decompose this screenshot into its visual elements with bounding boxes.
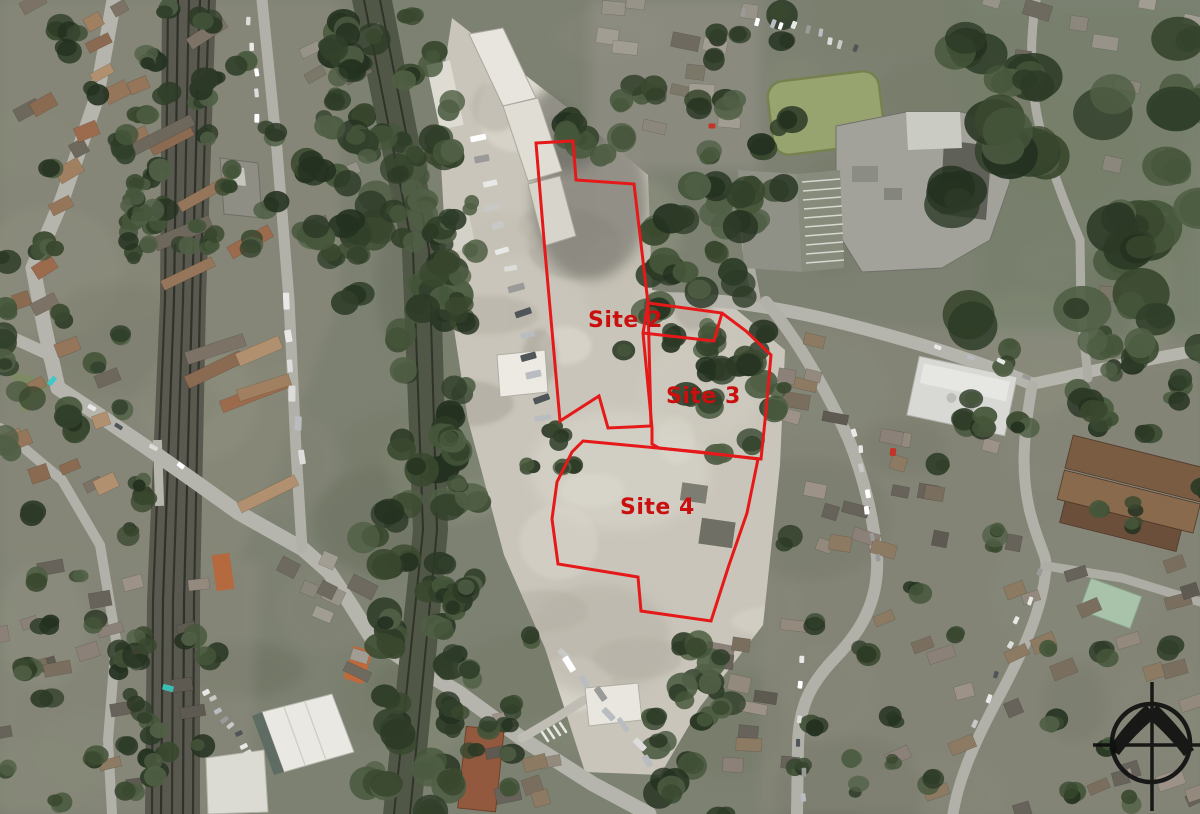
house-roof	[171, 677, 194, 693]
car	[797, 681, 803, 689]
tree-canopy	[150, 722, 169, 738]
tree-canopy	[425, 50, 440, 63]
tree-canopy	[438, 100, 460, 122]
tree-canopy	[194, 646, 217, 665]
tree-canopy	[127, 252, 141, 264]
tree-canopy	[366, 29, 382, 45]
tree-canopy	[143, 492, 157, 505]
tree-canopy	[191, 739, 205, 751]
tree-canopy	[39, 617, 59, 635]
tree-canopy	[1089, 500, 1109, 518]
tree-canopy	[1125, 518, 1139, 530]
tree-canopy	[387, 438, 416, 461]
tree-canopy	[646, 708, 667, 726]
tree-canopy	[390, 357, 417, 383]
tree-canopy	[705, 48, 724, 63]
tree-canopy	[374, 499, 404, 525]
tree-canopy	[13, 665, 32, 680]
car	[800, 793, 806, 802]
tree-canopy	[437, 769, 460, 791]
tree-canopy	[722, 90, 746, 109]
house-roof	[731, 637, 750, 653]
tree-canopy	[200, 131, 216, 146]
tree-canopy	[140, 235, 158, 253]
tree-canopy	[440, 139, 464, 162]
tree-canopy	[339, 59, 364, 80]
tree-canopy	[549, 433, 568, 451]
tree-canopy	[19, 386, 46, 410]
tree-canopy	[258, 121, 275, 135]
tree-canopy	[347, 246, 368, 265]
tree-canopy	[192, 12, 213, 30]
tree-canopy	[1135, 425, 1155, 443]
tree-canopy	[1080, 400, 1106, 423]
tree-canopy	[1077, 327, 1107, 354]
tree-canopy	[965, 392, 980, 404]
tree-canopy	[1063, 298, 1089, 319]
aerial-map-image: Site 2 Site 3 Site 4	[0, 0, 1200, 814]
tree-canopy	[126, 187, 141, 199]
tree-canopy	[442, 209, 467, 230]
tree-canopy	[152, 87, 176, 105]
house-roof	[828, 534, 852, 552]
tree-canopy	[392, 165, 409, 181]
tree-canopy	[1020, 70, 1054, 101]
tree-canopy	[445, 297, 468, 315]
tree-canopy	[468, 743, 486, 757]
tree-canopy	[137, 712, 152, 723]
tree-canopy	[140, 57, 154, 69]
large-building-roof	[906, 112, 962, 150]
tree-canopy	[438, 556, 454, 570]
tree-canopy	[667, 205, 699, 234]
tree-canopy	[686, 97, 711, 119]
tree-canopy	[945, 22, 986, 54]
tree-canopy	[83, 751, 102, 767]
tree-canopy	[110, 325, 131, 342]
tree-canopy	[379, 688, 400, 709]
tree-canopy	[319, 34, 348, 62]
car	[288, 386, 295, 402]
tree-canopy	[699, 150, 715, 164]
tree-canopy	[86, 84, 109, 105]
tree-canopy	[768, 31, 794, 51]
tree-canopy	[346, 130, 366, 145]
tree-canopy	[90, 362, 106, 374]
car	[890, 448, 897, 456]
car	[254, 114, 259, 123]
tree-canopy	[149, 158, 173, 181]
tree-canopy	[188, 219, 207, 233]
tree-canopy	[705, 242, 728, 263]
tree-canopy	[685, 173, 712, 199]
house-roof	[685, 64, 705, 81]
tree-canopy	[73, 570, 89, 583]
tree-canopy	[687, 280, 711, 299]
tree-canopy	[778, 525, 803, 548]
tree-canopy	[0, 759, 17, 776]
car	[246, 17, 251, 26]
tree-canopy	[673, 261, 699, 282]
tree-canopy	[441, 375, 467, 400]
tree-canopy	[0, 303, 17, 319]
tree-canopy	[1039, 716, 1059, 732]
tree-canopy	[1100, 362, 1118, 378]
car	[295, 416, 302, 430]
tree-canopy	[1158, 635, 1184, 655]
tree-canopy	[50, 304, 70, 322]
tree-canopy	[841, 750, 862, 767]
tree-canopy	[390, 205, 408, 223]
tree-canopy	[1096, 649, 1118, 668]
house-roof	[723, 757, 744, 772]
tree-canopy	[433, 622, 454, 640]
tree-canopy	[264, 191, 290, 213]
tree-canopy	[990, 523, 1005, 537]
tree-canopy	[857, 646, 877, 663]
tree-canopy	[55, 405, 82, 428]
warehouse-roof	[206, 750, 268, 814]
car	[858, 445, 863, 453]
tree-canopy	[972, 407, 997, 426]
tree-canopy	[240, 239, 262, 258]
house-roof	[602, 0, 626, 15]
tree-canopy	[685, 638, 707, 657]
tree-canopy	[422, 224, 439, 240]
tree-canopy	[808, 617, 823, 629]
tree-canopy	[336, 209, 366, 232]
tree-canopy	[1170, 369, 1193, 390]
tree-canopy	[519, 458, 534, 472]
tree-canopy	[370, 771, 403, 797]
tree-canopy	[386, 318, 417, 349]
tree-canopy	[723, 210, 758, 243]
car	[799, 656, 804, 663]
car	[283, 293, 290, 310]
tree-canopy	[347, 522, 380, 553]
tree-canopy	[115, 124, 139, 145]
tree-canopy	[879, 706, 902, 727]
tree-canopy	[501, 718, 519, 732]
tree-canopy	[1039, 640, 1057, 657]
tree-canopy	[406, 457, 426, 475]
tree-canopy	[944, 188, 972, 211]
tree-canopy	[26, 573, 47, 592]
tree-canopy	[984, 65, 1015, 93]
tree-canopy	[462, 203, 477, 216]
tree-canopy	[1124, 328, 1155, 358]
tree-canopy	[848, 776, 869, 792]
tree-canopy	[769, 174, 798, 202]
tree-canopy	[402, 7, 423, 25]
tree-canopy	[309, 159, 336, 182]
tree-canopy	[133, 479, 146, 491]
house-roof	[1069, 15, 1088, 31]
site-2-label: Site 2	[588, 308, 663, 333]
tree-canopy	[1163, 158, 1191, 184]
tree-canopy	[115, 736, 135, 753]
tree-canopy	[123, 688, 138, 701]
tree-canopy	[439, 431, 458, 447]
tree-canopy	[46, 241, 64, 257]
tree-canopy	[661, 784, 682, 803]
tree-canopy	[645, 88, 665, 105]
tree-canopy	[206, 225, 225, 243]
tree-canopy	[983, 108, 1033, 155]
tree-canopy	[84, 617, 103, 634]
tree-canopy	[377, 616, 393, 629]
tree-canopy	[1126, 236, 1157, 259]
tree-canopy	[178, 236, 198, 255]
aerial-map: Site 2 Site 3 Site 4	[0, 0, 1200, 814]
tree-canopy	[458, 580, 475, 595]
tree-canopy	[1121, 790, 1137, 805]
rooftop-unit	[852, 166, 878, 182]
car	[802, 768, 807, 777]
tree-canopy	[451, 705, 470, 720]
tree-canopy	[67, 25, 88, 41]
tree-canopy	[137, 638, 157, 654]
tree-canopy	[156, 5, 173, 18]
tree-canopy	[886, 754, 898, 764]
tree-canopy	[1124, 496, 1141, 509]
tree-canopy	[117, 525, 140, 546]
tree-canopy	[364, 633, 399, 659]
tree-canopy	[721, 270, 756, 298]
tree-canopy	[697, 364, 716, 382]
house-roof	[612, 40, 639, 55]
tree-canopy	[118, 232, 139, 250]
house-roof	[931, 530, 949, 548]
tree-canopy	[524, 630, 540, 643]
tree-canopy	[38, 159, 60, 177]
tree-canopy	[730, 27, 747, 42]
tree-canopy	[47, 794, 62, 806]
tree-canopy	[392, 70, 417, 90]
tree-canopy	[221, 180, 238, 193]
tree-canopy	[367, 549, 402, 580]
tree-canopy	[697, 713, 713, 727]
yard-shed	[698, 518, 735, 548]
tree-canopy	[594, 144, 616, 164]
tree-canopy	[222, 160, 241, 179]
car	[864, 506, 870, 515]
tree-canopy	[747, 133, 775, 155]
annex-roof	[797, 170, 844, 272]
tree-canopy	[806, 719, 824, 736]
rooftop-unit	[884, 188, 902, 200]
tree-canopy	[922, 769, 944, 789]
car	[249, 43, 254, 51]
tree-canopy	[331, 290, 359, 315]
tree-canopy	[303, 215, 330, 239]
tree-canopy	[712, 701, 730, 715]
tree-canopy	[1010, 421, 1024, 433]
tree-canopy	[433, 249, 461, 275]
tree-canopy	[1059, 782, 1078, 800]
car	[709, 124, 716, 129]
car	[287, 359, 293, 372]
tree-canopy	[314, 115, 338, 137]
tree-canopy	[462, 243, 478, 258]
tree-canopy	[1168, 392, 1190, 411]
tree-canopy	[711, 649, 730, 665]
tree-canopy	[778, 110, 797, 129]
tree-canopy	[324, 93, 345, 110]
tree-canopy	[20, 504, 44, 526]
tree-canopy	[612, 98, 629, 113]
tree-canopy	[451, 479, 467, 492]
tree-canopy	[1090, 74, 1135, 114]
tree-canopy	[115, 781, 136, 800]
house-roof	[924, 485, 945, 502]
tree-canopy	[948, 301, 998, 350]
tree-canopy	[446, 600, 460, 614]
tree-canopy	[776, 382, 791, 394]
site-3-label: Site 3	[666, 384, 741, 409]
tree-canopy	[459, 661, 480, 679]
tree-canopy	[926, 453, 950, 476]
tree-canopy	[499, 778, 519, 797]
tree-canopy	[617, 344, 632, 356]
tree-canopy	[736, 353, 761, 376]
tree-canopy	[403, 232, 425, 253]
tree-canopy	[144, 753, 163, 770]
tree-canopy	[479, 716, 497, 732]
tree-canopy	[554, 125, 581, 149]
tree-canopy	[770, 3, 790, 19]
tree-canopy	[191, 67, 218, 91]
tree-canopy	[443, 644, 462, 661]
house-roof	[736, 738, 762, 752]
tree-canopy	[334, 170, 362, 196]
tree-canopy	[705, 23, 728, 42]
house-roof	[188, 578, 210, 591]
tree-canopy	[499, 746, 516, 761]
site-4-label: Site 4	[620, 495, 695, 520]
car	[875, 554, 880, 562]
tree-canopy	[225, 56, 248, 76]
tree-canopy	[726, 180, 756, 208]
tree-canopy	[111, 399, 128, 415]
tree-canopy	[405, 294, 440, 323]
tree-canopy	[675, 691, 695, 709]
tree-canopy	[649, 733, 668, 747]
tree-canopy	[136, 106, 159, 124]
tree-canopy	[380, 719, 415, 750]
car	[796, 739, 800, 747]
tree-canopy	[181, 632, 197, 646]
tree-canopy	[30, 690, 53, 708]
tree-canopy	[908, 583, 932, 604]
tree-canopy	[358, 149, 377, 164]
tree-canopy	[948, 626, 965, 640]
